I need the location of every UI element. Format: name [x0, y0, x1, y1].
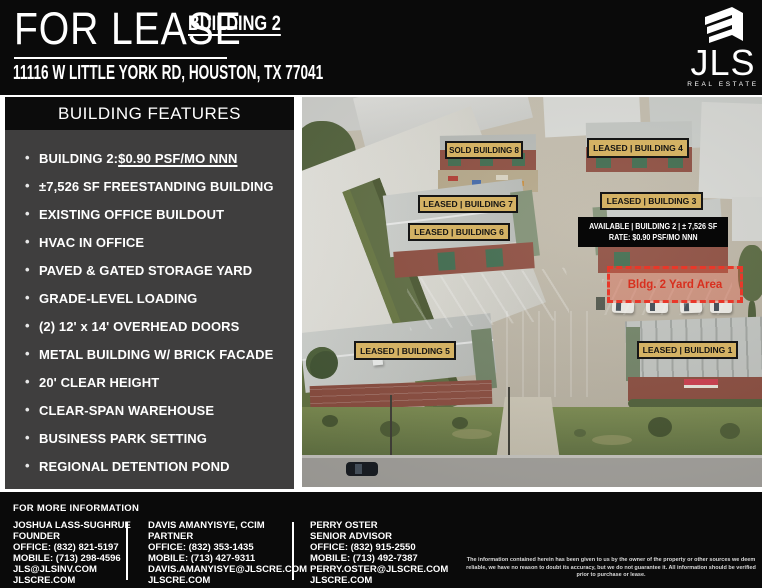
pickup-truck	[346, 462, 378, 476]
header-bar: FOR LEASE BUILDING 2 11116 W LITTLE YORK…	[0, 0, 762, 95]
feature-item: BUSINESS PARK SETTING	[25, 424, 286, 452]
contact-website: JLSCRE.COM	[13, 575, 131, 586]
contact-card: JOSHUA LASS-SUGHRUE FOUNDER OFFICE: (832…	[13, 520, 131, 586]
content-row: BUILDING FEATURES BUILDING 2: $0.90 PSF/…	[0, 95, 762, 492]
aerial-photo: SOLD BUILDING 8 LEASED | BUILDING 4 LEAS…	[302, 97, 762, 487]
building-features-panel: BUILDING FEATURES BUILDING 2: $0.90 PSF/…	[5, 97, 294, 489]
feature-item: EXISTING OFFICE BUILDOUT	[25, 200, 286, 228]
photo-label-building-5: LEASED | BUILDING 5	[354, 341, 456, 360]
truck-cab	[355, 464, 362, 474]
disclaimer-text: The information contained herein has bee…	[465, 557, 757, 580]
footer-divider	[292, 522, 294, 580]
logo-wordmark: JLS	[690, 47, 755, 79]
footer-heading: FOR MORE INFORMATION	[13, 503, 139, 514]
photo-label-building-1: LEASED | BUILDING 1	[637, 341, 738, 359]
yard-equipment	[496, 175, 508, 180]
contact-name: JOSHUA LASS-SUGHRUE	[13, 520, 131, 531]
bay-door	[437, 252, 455, 271]
contact-name: DAVIS AMANYISYE, CCIM	[148, 520, 307, 531]
contact-card: DAVIS AMANYISYE, CCIM PARTNER OFFICE: (8…	[148, 520, 307, 586]
contact-email: JLS@JLSINV.COM	[13, 564, 131, 575]
contact-title: PARTNER	[148, 531, 307, 542]
contact-name: PERRY OSTER	[310, 520, 448, 531]
feature-item: METAL BUILDING W/ BRICK FACADE	[25, 340, 286, 368]
contact-mobile-phone: MOBILE: (713) 427-9311	[148, 553, 307, 564]
contact-website: JLSCRE.COM	[148, 575, 307, 586]
features-list: BUILDING 2: $0.90 PSF/MO NNN ±7,526 SF F…	[5, 130, 294, 480]
building-tag: BUILDING 2	[188, 12, 281, 36]
photo-label-building-7: LEASED | BUILDING 7	[418, 195, 518, 213]
available-line-2: RATE: $0.90 PSF/MO NNN	[609, 232, 698, 243]
title-underline	[14, 57, 227, 59]
feature-item: ±7,526 SF FREESTANDING BUILDING	[25, 172, 286, 200]
contact-office-phone: OFFICE: (832) 353-1435	[148, 542, 307, 553]
building-2-yard-area-outline: Bldg. 2 Yard Area	[607, 266, 743, 303]
flyer-page: FOR LEASE BUILDING 2 11116 W LITTLE YORK…	[0, 0, 762, 588]
utility-pole	[390, 395, 392, 455]
contact-office-phone: OFFICE: (832) 821-5197	[13, 542, 131, 553]
feature-highlight-rate: $0.90 PSF/MO NNN	[118, 151, 237, 166]
feature-item: GRADE-LEVEL LOADING	[25, 284, 286, 312]
photo-label-building-3: LEASED | BUILDING 3	[600, 192, 703, 210]
available-building-2-callout: AVAILABLE | BUILDING 2 | ± 7,526 SF RATE…	[578, 217, 728, 247]
contact-card: PERRY OSTER SENIOR ADVISOR OFFICE: (832)…	[310, 520, 448, 586]
footer-bar: FOR MORE INFORMATION JOSHUA LASS-SUGHRUE…	[0, 492, 762, 588]
contact-email: PERRY.OSTER@JLSCRE.COM	[310, 564, 448, 575]
jls-logo: JLS REAL ESTATE	[684, 0, 762, 95]
storefront-sign	[684, 379, 718, 388]
photo-label-building-4: LEASED | BUILDING 4	[587, 138, 689, 158]
feature-item: REGIONAL DETENTION POND	[25, 452, 286, 480]
parking-stripes	[506, 311, 592, 397]
feature-item: 20' CLEAR HEIGHT	[25, 368, 286, 396]
neighbor-building	[732, 197, 762, 241]
contact-website: JLSCRE.COM	[310, 575, 448, 586]
bay-door	[485, 248, 503, 267]
feature-item: CLEAR-SPAN WAREHOUSE	[25, 396, 286, 424]
yard-equipment	[448, 176, 458, 181]
contact-title: FOUNDER	[13, 531, 131, 542]
feature-item: HVAC IN OFFICE	[25, 228, 286, 256]
available-line-1: AVAILABLE | BUILDING 2 | ± 7,526 SF	[589, 221, 717, 232]
building-5-wall	[310, 380, 493, 410]
palm-tree	[306, 347, 338, 379]
contact-email: DAVIS.AMANYISYE@JLSCRE.COM	[148, 564, 307, 575]
logo-tagline: REAL ESTATE	[687, 81, 758, 88]
jls-building-icon	[699, 5, 747, 47]
contact-mobile-phone: MOBILE: (713) 298-4596	[13, 553, 131, 564]
building-1-wall	[628, 377, 762, 401]
feature-item: (2) 12' x 14' OVERHEAD DOORS	[25, 312, 286, 340]
bushes	[322, 415, 338, 427]
photo-label-building-8: SOLD BUILDING 8	[445, 141, 523, 159]
utility-pole	[508, 387, 510, 455]
neighbor-building	[698, 102, 762, 200]
footer-divider	[126, 522, 128, 580]
dry-grass-patch	[452, 429, 492, 439]
contact-mobile-phone: MOBILE: (713) 492-7387	[310, 553, 448, 564]
feature-highlight-prefix: BUILDING 2:	[39, 151, 118, 166]
feature-item: PAVED & GATED STORAGE YARD	[25, 256, 286, 284]
photo-label-building-6: LEASED | BUILDING 6	[408, 223, 510, 241]
contact-title: SENIOR ADVISOR	[310, 531, 448, 542]
property-address: 11116 W LITTLE YORK RD, HOUSTON, TX 7704…	[13, 62, 323, 85]
contact-office-phone: OFFICE: (832) 915-2550	[310, 542, 448, 553]
feature-highlight: BUILDING 2: $0.90 PSF/MO NNN	[25, 144, 286, 172]
features-title: BUILDING FEATURES	[5, 97, 294, 130]
